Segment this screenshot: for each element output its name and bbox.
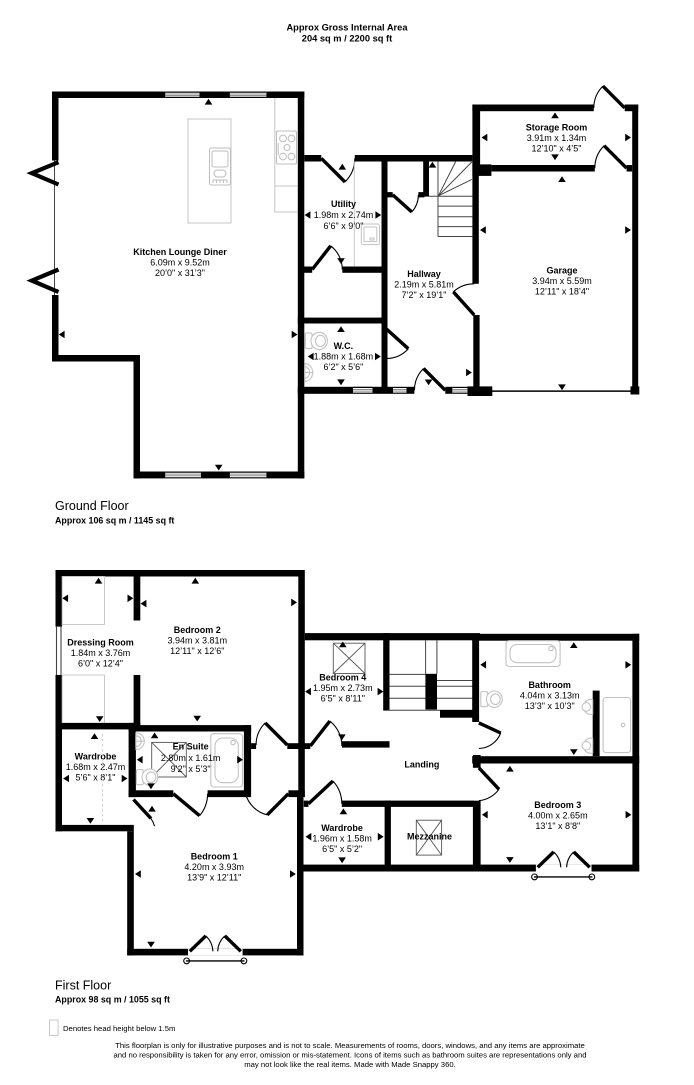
svg-text:3.94m x 3.81m: 3.94m x 3.81m <box>168 636 228 646</box>
svg-text:20’0" x 31’3": 20’0" x 31’3" <box>155 268 205 278</box>
svg-text:13’9" x 12’11": 13’9" x 12’11" <box>187 873 241 883</box>
svg-text:Approx Gross Internal Area: Approx Gross Internal Area <box>286 23 408 33</box>
svg-text:Utility: Utility <box>331 199 356 209</box>
svg-text:This floorplan is only for ill: This floorplan is only for illustrative … <box>115 1041 585 1050</box>
svg-text:4.20m x 3.93m: 4.20m x 3.93m <box>184 862 244 872</box>
svg-text:Bedroom 1: Bedroom 1 <box>191 852 238 862</box>
svg-text:2.19m x 5.81m: 2.19m x 5.81m <box>394 280 454 290</box>
svg-text:6’5" x 5’2": 6’5" x 5’2" <box>322 844 362 854</box>
svg-text:12’10" x 4’5": 12’10" x 4’5" <box>532 144 582 154</box>
svg-text:1.88m x 1.68m: 1.88m x 1.68m <box>314 352 374 362</box>
svg-text:Approx 106 sq m / 1145 sq ft: Approx 106 sq m / 1145 sq ft <box>55 516 174 526</box>
svg-text:12’11" x 18’4": 12’11" x 18’4" <box>535 287 589 297</box>
svg-text:9’2" x 5’3": 9’2" x 5’3" <box>171 764 211 774</box>
svg-text:Garage: Garage <box>546 266 577 276</box>
svg-text:Wardrobe: Wardrobe <box>321 823 363 833</box>
svg-text:1.96m x 1.58m: 1.96m x 1.58m <box>312 834 372 844</box>
svg-text:Denotes head height below 1.5m: Denotes head height below 1.5m <box>63 1024 175 1033</box>
svg-text:2.80m x 1.61m: 2.80m x 1.61m <box>161 753 221 763</box>
svg-text:1.95m x 2.73m: 1.95m x 2.73m <box>313 683 373 693</box>
svg-text:6’2" x 5’6": 6’2" x 5’6" <box>323 362 363 372</box>
svg-text:Landing: Landing <box>404 759 439 769</box>
svg-text:Approx 98 sq m / 1055 sq ft: Approx 98 sq m / 1055 sq ft <box>55 995 170 1005</box>
svg-text:Bedroom 3: Bedroom 3 <box>534 800 581 810</box>
svg-text:and no responsibility is taken: and no responsibility is taken for any e… <box>113 1050 586 1059</box>
svg-text:6’5" x 8’11": 6’5" x 8’11" <box>321 694 365 704</box>
svg-text:6’6" x 9’0": 6’6" x 9’0" <box>324 221 364 231</box>
svg-text:204 sq m / 2200 sq ft: 204 sq m / 2200 sq ft <box>302 34 392 44</box>
svg-text:W.C.: W.C. <box>334 341 354 351</box>
svg-text:13’1" x 8’8": 13’1" x 8’8" <box>535 821 580 831</box>
svg-text:Hallway: Hallway <box>407 269 441 279</box>
svg-text:Ground Floor: Ground Floor <box>55 499 129 513</box>
svg-text:Dressing Room: Dressing Room <box>67 638 134 648</box>
svg-text:4.04m x 3.13m: 4.04m x 3.13m <box>520 691 580 701</box>
svg-text:1.84m x 3.76m: 1.84m x 3.76m <box>71 648 131 658</box>
svg-text:Bedroom 4: Bedroom 4 <box>319 673 366 683</box>
svg-text:6’0" x 12’4": 6’0" x 12’4" <box>78 659 123 669</box>
svg-text:3.94m x 5.59m: 3.94m x 5.59m <box>532 276 592 286</box>
svg-text:Kitchen Lounge Diner: Kitchen Lounge Diner <box>133 247 227 257</box>
svg-text:Bathroom: Bathroom <box>528 680 571 690</box>
svg-text:may not look like the real ite: may not look like the real items. Made w… <box>244 1060 456 1069</box>
svg-text:Wardrobe: Wardrobe <box>75 752 117 762</box>
svg-text:13’3" x 10’3": 13’3" x 10’3" <box>525 701 575 711</box>
svg-text:6.09m x 9.52m: 6.09m x 9.52m <box>150 258 210 268</box>
svg-text:3.91m x 1.34m: 3.91m x 1.34m <box>527 133 587 143</box>
svg-text:12’11" x 12’6": 12’11" x 12’6" <box>170 646 224 656</box>
svg-text:4.00m x 2.65m: 4.00m x 2.65m <box>528 811 588 821</box>
svg-text:1.68m x 2.47m: 1.68m x 2.47m <box>66 762 126 772</box>
svg-text:Storage Room: Storage Room <box>526 123 588 133</box>
svg-text:7’2" x 19’1": 7’2" x 19’1" <box>402 290 447 300</box>
svg-text:5’6" x 8’1": 5’6" x 8’1" <box>76 773 116 783</box>
svg-text:First Floor: First Floor <box>55 979 111 993</box>
svg-text:1.98m x 2.74m: 1.98m x 2.74m <box>314 210 374 220</box>
svg-text:Mezzanine: Mezzanine <box>407 832 452 842</box>
svg-text:Bedroom 2: Bedroom 2 <box>174 625 221 635</box>
svg-text:En Suite: En Suite <box>173 742 209 752</box>
